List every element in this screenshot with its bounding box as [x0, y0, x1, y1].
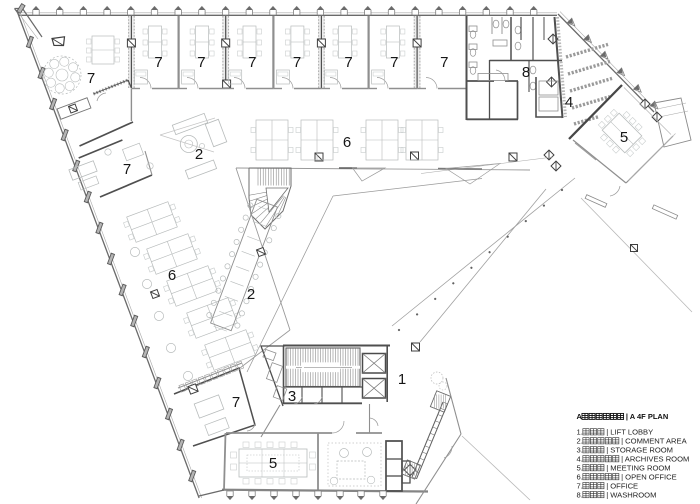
svg-text:| OPEN OFFICE: | OPEN OFFICE [621, 472, 677, 481]
svg-text:1: 1 [398, 371, 406, 388]
svg-text:| MEETING ROOM: | MEETING ROOM [606, 463, 670, 472]
svg-text:| ARCHIVES ROOM: | ARCHIVES ROOM [621, 454, 689, 463]
svg-text:| OFFICE: | OFFICE [606, 481, 638, 490]
svg-text:5: 5 [269, 455, 277, 472]
svg-text:5: 5 [620, 129, 628, 146]
svg-text:| WASHROOM: | WASHROOM [606, 490, 656, 499]
svg-text:4.: 4. [577, 454, 583, 463]
svg-text:2: 2 [195, 146, 203, 163]
svg-text:7: 7 [197, 54, 205, 71]
svg-text:7: 7 [232, 394, 240, 411]
svg-text:| STORAGE ROOM: | STORAGE ROOM [606, 445, 673, 454]
svg-text:3.: 3. [577, 445, 583, 454]
svg-text:3: 3 [288, 388, 296, 405]
svg-text:| A 4F PLAN: | A 4F PLAN [626, 412, 668, 421]
svg-text:7: 7 [154, 54, 162, 71]
svg-text:6: 6 [343, 134, 351, 151]
svg-text:5.: 5. [577, 463, 583, 472]
svg-text:8.: 8. [577, 490, 583, 499]
svg-text:6.: 6. [577, 472, 583, 481]
svg-text:7: 7 [248, 54, 256, 71]
svg-text:7: 7 [123, 161, 131, 178]
svg-text:4: 4 [565, 94, 573, 111]
svg-text:| LIFT LOBBY: | LIFT LOBBY [606, 428, 653, 437]
svg-text:2: 2 [247, 286, 255, 303]
svg-text:7: 7 [293, 54, 301, 71]
svg-text:7: 7 [87, 70, 95, 87]
svg-text:7: 7 [440, 54, 448, 71]
svg-text:7: 7 [344, 54, 352, 71]
svg-text:7: 7 [390, 54, 398, 71]
svg-text:1.: 1. [577, 428, 583, 437]
svg-text:8: 8 [522, 64, 530, 81]
svg-text:6: 6 [168, 267, 176, 284]
svg-text:| COMMENT AREA: | COMMENT AREA [621, 437, 687, 446]
svg-text:7.: 7. [577, 481, 583, 490]
svg-text:2.: 2. [577, 437, 583, 446]
